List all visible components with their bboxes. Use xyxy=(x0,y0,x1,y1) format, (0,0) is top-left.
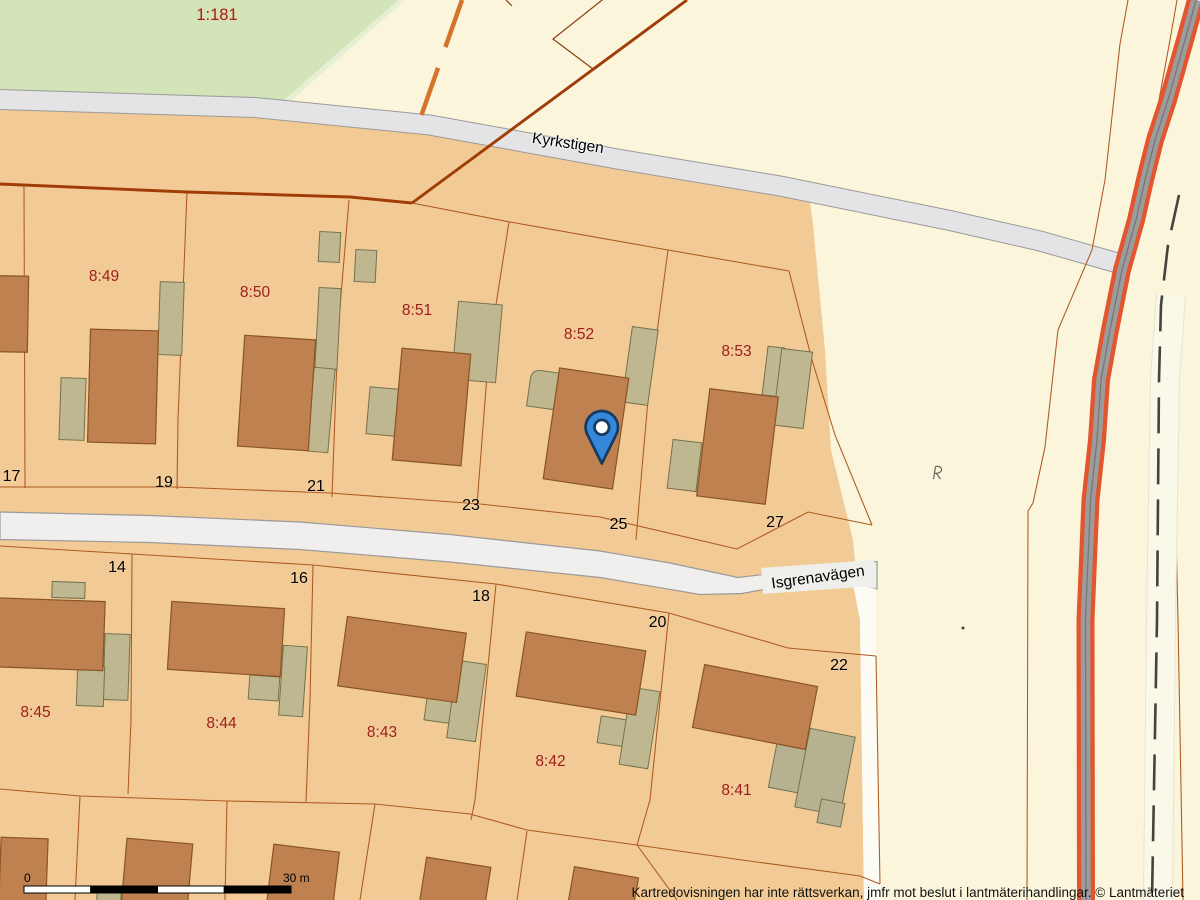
svg-text:17: 17 xyxy=(3,468,21,485)
svg-text:8:53: 8:53 xyxy=(721,343,751,360)
svg-text:30 m: 30 m xyxy=(283,871,310,885)
svg-text:20: 20 xyxy=(649,614,667,631)
svg-text:16: 16 xyxy=(290,570,308,587)
svg-text:18: 18 xyxy=(472,588,490,605)
svg-text:27: 27 xyxy=(766,514,784,531)
svg-text:8:44: 8:44 xyxy=(206,715,237,732)
svg-text:22: 22 xyxy=(830,657,848,674)
svg-text:23: 23 xyxy=(462,497,480,514)
svg-text:8:50: 8:50 xyxy=(240,284,271,301)
svg-text:1:181: 1:181 xyxy=(196,6,237,24)
svg-text:14: 14 xyxy=(108,559,126,576)
svg-text:0: 0 xyxy=(24,871,31,885)
svg-text:25: 25 xyxy=(610,516,628,533)
svg-text:19: 19 xyxy=(155,474,173,491)
svg-text:8:49: 8:49 xyxy=(89,268,119,285)
svg-text:8:43: 8:43 xyxy=(367,724,397,741)
svg-text:8:52: 8:52 xyxy=(564,326,594,343)
svg-text:8:41: 8:41 xyxy=(721,782,751,799)
svg-text:Kartredovisningen har inte rät: Kartredovisningen har inte rättsverkan, … xyxy=(632,885,1185,900)
svg-text:8:42: 8:42 xyxy=(535,753,565,770)
svg-text:8:45: 8:45 xyxy=(20,704,50,721)
svg-text:8:51: 8:51 xyxy=(402,302,432,319)
svg-text:21: 21 xyxy=(307,478,325,495)
